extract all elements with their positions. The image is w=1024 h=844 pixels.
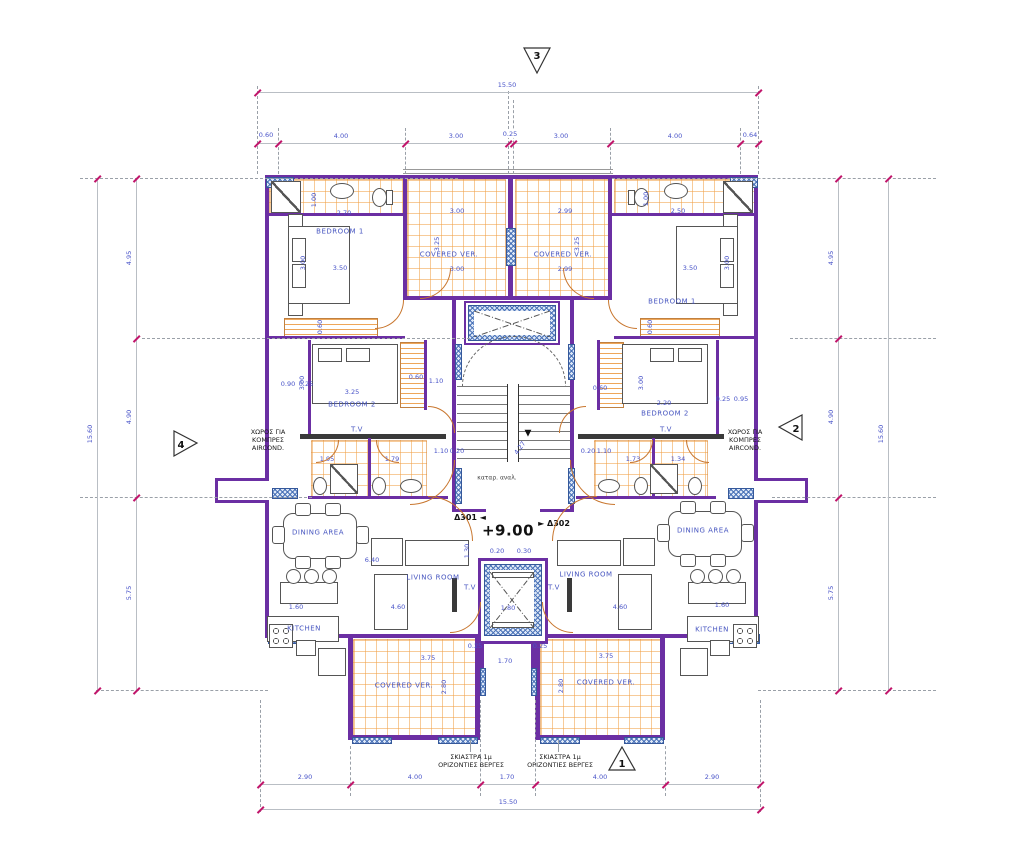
dimension-label: 4.00 bbox=[668, 132, 682, 140]
room-label: COVERED VER. bbox=[420, 251, 478, 260]
kitchen-sink bbox=[710, 640, 730, 656]
dimension-label: 3.25 bbox=[573, 237, 581, 251]
room-label: DINING AREA bbox=[677, 527, 729, 536]
annotation-text: ΧΩΡΟΣ ΓΙΑ ΚΟΜΠΡΕΣ AIRCOND. bbox=[728, 428, 763, 452]
toilet-tank bbox=[628, 190, 635, 205]
dining-chair bbox=[680, 501, 696, 514]
dining-chair bbox=[325, 503, 341, 516]
grid-guide-line bbox=[350, 746, 351, 796]
nightstand bbox=[723, 303, 738, 316]
dimension-label: 2.80 bbox=[440, 680, 448, 694]
toilet-tank bbox=[386, 190, 393, 205]
dimension-label: 1.10 bbox=[434, 447, 448, 455]
grid-guide-line bbox=[142, 338, 470, 339]
shaft-x-mark bbox=[474, 311, 550, 337]
section-marker-3-label: 3 bbox=[534, 51, 541, 62]
dining-chair bbox=[710, 501, 726, 514]
nightstand bbox=[288, 214, 303, 227]
dimension-label: 15.60 bbox=[86, 425, 94, 444]
room-label: DINING AREA bbox=[292, 529, 344, 538]
door-swing-arc bbox=[608, 300, 637, 329]
dimension-label: 3.50 bbox=[683, 264, 697, 272]
dimension-label: 0.60 bbox=[593, 384, 607, 392]
door-swing-arc bbox=[428, 496, 473, 541]
bar-stool bbox=[322, 569, 337, 584]
room-label: T.V bbox=[660, 426, 672, 435]
dimension-label: 3.00 bbox=[450, 265, 464, 273]
room-label: COVERED VER. bbox=[577, 679, 635, 688]
section-marker-2: 2 bbox=[777, 413, 805, 443]
dimension-label: 1.70 bbox=[498, 657, 512, 665]
room-label: LIVING ROOM bbox=[406, 574, 459, 583]
grid-guide-line bbox=[278, 128, 279, 174]
dimension-label: 3.00 bbox=[723, 256, 731, 270]
bar-stool bbox=[286, 569, 301, 584]
dimension-label: 2.50 bbox=[671, 207, 685, 215]
dining-chair bbox=[680, 554, 696, 567]
dimension-line-top-overall bbox=[257, 92, 758, 93]
grid-guide-line bbox=[610, 128, 611, 174]
pillow bbox=[650, 348, 674, 362]
tv-wall bbox=[578, 434, 724, 439]
section-marker-1: 1 bbox=[608, 745, 638, 773]
wall bbox=[754, 500, 808, 503]
annotation-text: καταρ. αναλ. bbox=[477, 474, 516, 482]
room-label: BEDROOM 2 bbox=[328, 401, 376, 410]
wall bbox=[215, 500, 269, 503]
hatch-pier bbox=[531, 668, 537, 696]
dining-chair bbox=[295, 503, 311, 516]
dimension-label: 4.60 bbox=[391, 603, 405, 611]
section-marker-4: 4 bbox=[172, 429, 200, 459]
dining-chair bbox=[295, 556, 311, 569]
toilet bbox=[372, 188, 387, 207]
wardrobe bbox=[598, 342, 624, 408]
grid-guide-line bbox=[760, 700, 761, 812]
dimension-label: 2.90 bbox=[705, 773, 719, 781]
dimension-label: 3.00 bbox=[450, 207, 464, 215]
dimension-label: 1.10 bbox=[597, 447, 611, 455]
bar-stool bbox=[304, 569, 319, 584]
dimension-label: 2.70 bbox=[337, 209, 351, 217]
toilet bbox=[313, 477, 327, 495]
hatch-pier bbox=[506, 228, 516, 266]
toilet bbox=[688, 477, 702, 495]
dimension-label: 4.90 bbox=[125, 410, 133, 424]
toilet bbox=[372, 477, 386, 495]
dimension-label: 1.10 bbox=[429, 377, 443, 385]
nightstand bbox=[288, 303, 303, 316]
room-label: KITCHEN bbox=[287, 625, 321, 634]
dimension-label: 0.25 bbox=[533, 642, 547, 650]
dimension-label: 3.00 bbox=[637, 376, 645, 390]
dimension-label: 0.95 bbox=[734, 395, 748, 403]
wall bbox=[754, 478, 808, 481]
dimension-label: 4.00 bbox=[334, 132, 348, 140]
stair-winders bbox=[462, 336, 566, 386]
dining-chair bbox=[710, 554, 726, 567]
dimension-label: 0.60 bbox=[259, 131, 273, 139]
dimension-tick bbox=[757, 806, 764, 813]
pillow bbox=[346, 348, 370, 362]
dimension-label: 5.75 bbox=[125, 586, 133, 600]
room-label: T.V bbox=[464, 584, 476, 593]
grid-guide-line bbox=[558, 740, 559, 752]
room-label: T.V bbox=[548, 584, 560, 593]
dining-chair bbox=[356, 526, 369, 544]
sink bbox=[330, 183, 354, 199]
shower bbox=[330, 464, 358, 494]
annotation-text: ΧΩΡΟΣ ΓΙΑ ΚΟΜΠΡΕΣ AIRCOND. bbox=[251, 428, 286, 452]
door-swing-arc bbox=[375, 300, 404, 329]
dimension-label: 1.60 bbox=[289, 603, 303, 611]
fridge bbox=[680, 648, 708, 676]
kitchen-sink bbox=[296, 640, 316, 656]
dimension-label: 15.50 bbox=[499, 798, 518, 806]
section-marker-4-label: 4 bbox=[178, 440, 185, 451]
wall bbox=[308, 340, 311, 437]
dimension-label: 2.20 bbox=[657, 399, 671, 407]
hatch-pier bbox=[352, 737, 392, 744]
dimension-label: 4.95 bbox=[125, 251, 133, 265]
section-marker-1-label: 1 bbox=[619, 759, 626, 770]
dimension-label: 4.00 bbox=[593, 773, 607, 781]
dimension-label: 2.90 bbox=[298, 773, 312, 781]
dining-chair bbox=[272, 526, 285, 544]
dimension-label: 4.00 bbox=[408, 773, 422, 781]
veranda-wall bbox=[348, 634, 353, 740]
grid-guide-line bbox=[470, 740, 471, 752]
shower bbox=[271, 181, 301, 213]
section-marker-2-label: 2 bbox=[793, 424, 800, 435]
wall bbox=[424, 340, 427, 410]
grid-guide-line bbox=[772, 497, 936, 498]
dining-chair bbox=[657, 524, 670, 542]
wall bbox=[403, 175, 407, 300]
room-label: COVERED VER. bbox=[375, 682, 433, 691]
covered-veranda-floor bbox=[515, 179, 609, 298]
floor-plan-canvas: 1 2 3 4 bbox=[0, 0, 1024, 844]
dimension-label: 0.25 bbox=[716, 395, 730, 403]
grid-guide-line bbox=[665, 746, 666, 796]
hatch-pier bbox=[438, 737, 478, 744]
wall bbox=[511, 296, 612, 300]
stove bbox=[733, 624, 757, 648]
kitchen-counter bbox=[280, 582, 338, 604]
veranda-wall bbox=[660, 634, 665, 740]
grid-guide-line bbox=[740, 128, 741, 174]
room-label: LIVING ROOM bbox=[559, 571, 612, 580]
room-label: T.V bbox=[351, 426, 363, 435]
toilet bbox=[634, 477, 648, 495]
dimension-label: 0.60 bbox=[409, 373, 423, 381]
room-label: BEDROOM 1 bbox=[648, 298, 696, 307]
hatch-pier bbox=[455, 344, 462, 380]
hatch-pier bbox=[728, 488, 754, 499]
room-label: BEDROOM 1 bbox=[316, 228, 364, 237]
hatch-pier bbox=[480, 668, 486, 696]
armchair bbox=[623, 538, 655, 566]
hatch-pier bbox=[455, 468, 462, 504]
dimension-label: 1.00 bbox=[642, 192, 650, 206]
wall bbox=[716, 340, 719, 437]
dimension-label: 3.00 bbox=[449, 132, 463, 140]
annotation-text: ΣΚΙΑΣΤΡΑ 1μ ΟΡΙΖΟΝΤΙΕΣ ΒΕΡΓΕΣ bbox=[527, 753, 593, 769]
grid-guide-line bbox=[260, 700, 261, 812]
dimension-label: 1.30 bbox=[463, 544, 471, 558]
wall bbox=[608, 175, 612, 300]
annotation-text: ΣΚΙΑΣΤΡΑ 1μ ΟΡΙΖΟΝΤΙΕΣ ΒΕΡΓΕΣ bbox=[438, 753, 504, 769]
grid-guide-line bbox=[405, 128, 406, 174]
grid-guide-line bbox=[96, 690, 268, 691]
shaft-x-mark bbox=[490, 572, 534, 628]
dimension-label: 3.00 bbox=[554, 132, 568, 140]
door-swing-arc bbox=[428, 406, 455, 433]
room-label: COVERED VER. bbox=[534, 251, 592, 260]
dimension-label: 0.20 bbox=[581, 447, 595, 455]
door-swing-arc bbox=[450, 602, 481, 633]
dimension-label: 0.90 bbox=[281, 380, 295, 388]
dimension-line-right-segments bbox=[838, 178, 839, 690]
wall bbox=[215, 478, 269, 481]
dimension-label: 0.20 bbox=[450, 447, 464, 455]
dimension-line-right-overall bbox=[888, 178, 889, 690]
door-swing-arc bbox=[552, 496, 597, 541]
hatch-pier bbox=[624, 737, 664, 744]
bar-stool bbox=[708, 569, 723, 584]
dimension-label: 2.80 bbox=[557, 679, 565, 693]
dimension-label: 3.00 bbox=[298, 376, 306, 390]
wall bbox=[597, 340, 600, 410]
bar-stool bbox=[690, 569, 705, 584]
dimension-label: 0.60 bbox=[646, 320, 654, 334]
shower bbox=[723, 181, 753, 213]
dimension-label: 0.25 bbox=[468, 642, 482, 650]
dimension-line-bottom-overall bbox=[260, 809, 760, 810]
dimension-label: 4.90 bbox=[827, 410, 835, 424]
dimension-line-bottom-segments bbox=[260, 784, 760, 785]
dimension-label: 0.30 bbox=[517, 547, 531, 555]
dining-chair bbox=[325, 556, 341, 569]
dimension-line-left-overall bbox=[97, 178, 98, 690]
pillow bbox=[678, 348, 702, 362]
dimension-label: 6.40 bbox=[365, 556, 379, 564]
dimension-label: 1.70 bbox=[500, 773, 514, 781]
dimension-label: 3.50 bbox=[333, 264, 347, 272]
dimension-label: 1.00 bbox=[310, 193, 318, 207]
wall bbox=[614, 336, 756, 339]
dimension-label: 0.60 bbox=[316, 320, 324, 334]
dining-chair bbox=[741, 524, 754, 542]
dimension-label: 3.75 bbox=[599, 652, 613, 660]
dimension-label: 0.20 bbox=[490, 547, 504, 555]
wardrobe bbox=[284, 318, 378, 337]
dimension-label: 15.60 bbox=[877, 425, 885, 444]
dimension-label: 15.50 bbox=[498, 81, 517, 89]
dimension-line-left-segments bbox=[136, 178, 137, 690]
dimension-label: 3.25 bbox=[345, 388, 359, 396]
bar-stool bbox=[726, 569, 741, 584]
nightstand bbox=[723, 214, 738, 227]
pillow bbox=[318, 348, 342, 362]
grid-guide-line bbox=[80, 497, 312, 498]
level-label: +9.00 bbox=[482, 522, 534, 541]
dimension-label: 3.25 bbox=[433, 237, 441, 251]
section-marker-3: 3 bbox=[522, 46, 552, 76]
dimension-label: 4.95 bbox=[827, 251, 835, 265]
grid-guide-line bbox=[790, 338, 936, 339]
room-label: BEDROOM 2 bbox=[641, 410, 689, 419]
tv-wall bbox=[300, 434, 446, 439]
sofa bbox=[405, 540, 469, 566]
dimension-label: 3.00 bbox=[299, 256, 307, 270]
dimension-label: 1.60 bbox=[715, 601, 729, 609]
dimension-label: 1.34 bbox=[671, 455, 685, 463]
grid-guide-line bbox=[758, 690, 936, 691]
grid-guide-line bbox=[758, 86, 759, 174]
fridge bbox=[318, 648, 346, 676]
sink bbox=[664, 183, 688, 199]
hatch-pier bbox=[540, 737, 580, 744]
dimension-label: 0.64 bbox=[743, 131, 757, 139]
sofa bbox=[557, 540, 621, 566]
dimension-label: 4.60 bbox=[613, 603, 627, 611]
room-label: KITCHEN bbox=[695, 626, 729, 635]
stair-down-arrow: ▼ bbox=[525, 428, 532, 439]
wall bbox=[368, 438, 371, 498]
dimension-label: 3.75 bbox=[421, 654, 435, 662]
dimension-label: 2.99 bbox=[558, 207, 572, 215]
dimension-label: 5.75 bbox=[827, 586, 835, 600]
shower bbox=[650, 464, 678, 494]
hatch-pier bbox=[568, 344, 575, 380]
dimension-label: 0.25 bbox=[503, 130, 517, 138]
